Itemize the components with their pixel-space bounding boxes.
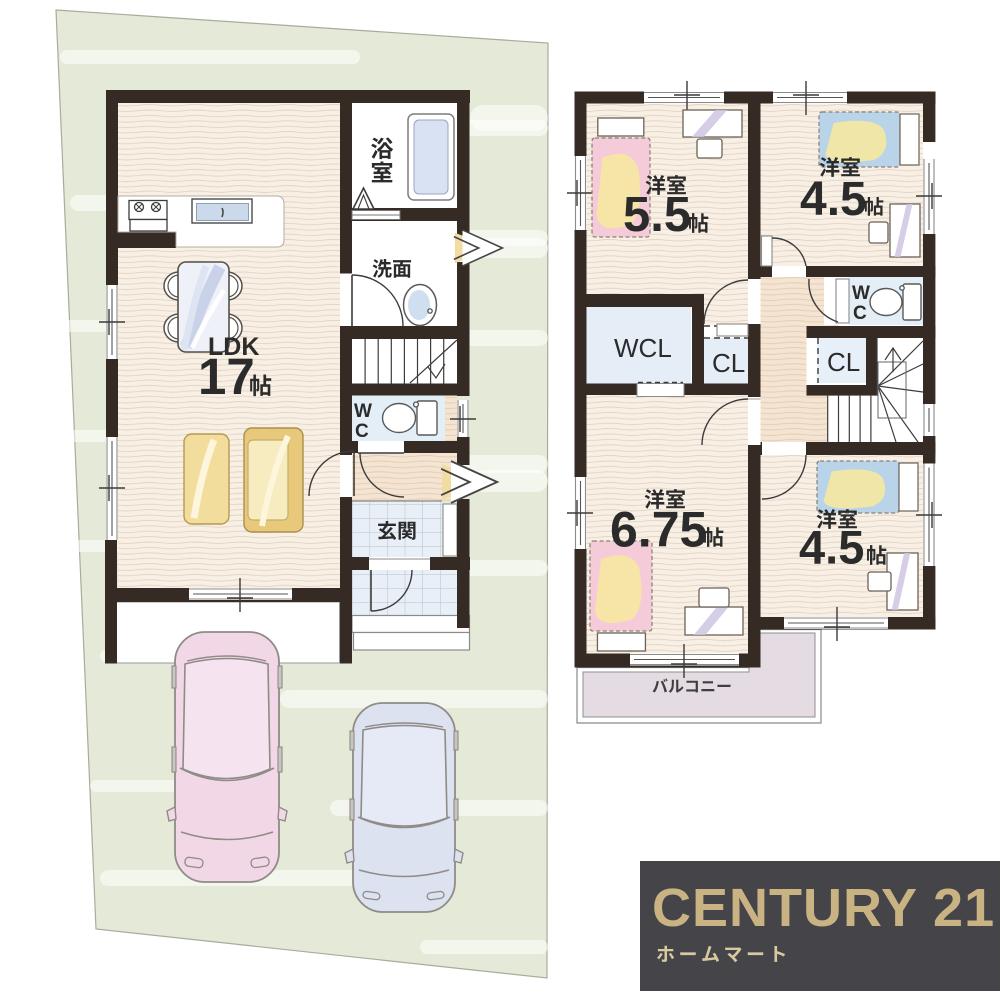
svg-text:C: C — [355, 421, 369, 442]
svg-text:W: W — [852, 283, 870, 304]
svg-text:WCL: WCL — [614, 333, 672, 363]
svg-text:4.5: 4.5 — [800, 173, 867, 226]
svg-text:CL: CL — [827, 347, 860, 377]
svg-text:5.5: 5.5 — [623, 188, 691, 242]
svg-text:W: W — [354, 401, 372, 422]
svg-text:CENTURY 21: CENTURY 21 — [652, 878, 995, 938]
svg-text:CL: CL — [712, 348, 745, 378]
svg-text:4.5: 4.5 — [799, 521, 864, 574]
svg-text:C: C — [853, 303, 867, 324]
svg-text:17: 17 — [198, 348, 255, 405]
svg-text:6.75: 6.75 — [610, 502, 707, 558]
